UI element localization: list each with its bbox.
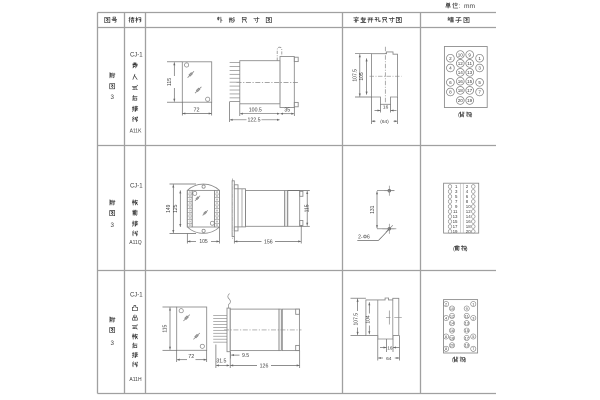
svg-text:14: 14 [450,322,454,326]
svg-text:107.5: 107.5 [352,69,358,82]
svg-text:2: 2 [445,302,447,306]
svg-text:72: 72 [188,354,194,360]
svg-text:12: 12 [458,61,464,66]
svg-text:): ) [466,246,468,252]
svg-text:3: 3 [110,94,114,101]
svg-text:3: 3 [478,66,481,71]
svg-text:mm: mm [464,3,475,10]
svg-text:6: 6 [445,335,447,339]
svg-text:18: 18 [458,88,464,93]
svg-text:1: 1 [478,56,481,61]
svg-text:156: 156 [264,239,273,245]
svg-text:(64): (64) [380,119,389,125]
svg-text:13: 13 [467,70,473,75]
svg-text:A11H: A11H [129,377,142,383]
svg-text:7: 7 [472,347,474,351]
svg-text:15: 15 [465,329,469,333]
svg-text:20: 20 [458,98,464,103]
svg-text:17: 17 [465,336,469,340]
svg-text:18: 18 [450,336,454,340]
svg-text:16: 16 [450,329,454,333]
svg-text:4: 4 [449,66,452,71]
svg-text:3: 3 [110,340,114,347]
svg-text:A11Q: A11Q [129,240,142,246]
svg-text:CJ-1: CJ-1 [130,184,143,190]
svg-text:20: 20 [450,344,454,348]
svg-text:105: 105 [359,72,365,81]
svg-text:CJ-1: CJ-1 [130,292,143,298]
svg-text:20: 20 [466,229,471,234]
svg-text:11: 11 [467,61,472,66]
svg-text:5: 5 [478,80,481,85]
svg-text:19: 19 [453,229,458,234]
svg-text:115: 115 [163,324,169,332]
svg-text:A11K: A11K [130,128,143,134]
svg-text:10: 10 [450,307,454,311]
svg-text:9.5: 9.5 [242,353,249,359]
svg-text:122.5: 122.5 [248,118,261,124]
svg-text:126: 126 [260,363,269,369]
svg-text:100.5: 100.5 [249,108,262,114]
svg-text:72: 72 [194,107,200,113]
svg-text:12: 12 [450,314,454,318]
svg-text:7: 7 [478,90,481,95]
svg-text:16: 16 [383,105,389,111]
svg-text:3: 3 [472,316,474,320]
svg-text:115: 115 [305,204,311,212]
svg-text:6: 6 [449,80,452,85]
svg-text:107.5: 107.5 [353,313,359,326]
svg-text:(: ( [453,246,455,252]
svg-text:115: 115 [167,78,173,86]
svg-text:Φ6: Φ6 [363,234,370,240]
svg-text:11: 11 [465,314,469,318]
svg-text:CJ-1: CJ-1 [130,52,143,58]
svg-text:): ) [471,113,473,119]
svg-text:31.5: 31.5 [216,359,226,365]
svg-text:8: 8 [445,347,447,351]
svg-text:19: 19 [465,344,469,348]
svg-text:8: 8 [449,90,452,95]
svg-text:9: 9 [466,307,468,311]
svg-text:104: 104 [366,315,372,324]
svg-text:105: 105 [199,239,208,245]
svg-text:10: 10 [458,52,464,57]
svg-text:15: 15 [467,79,473,84]
svg-text:125: 125 [173,204,179,213]
svg-text:9: 9 [468,52,471,57]
svg-text:1: 1 [472,302,474,306]
svg-text:14: 14 [458,70,464,75]
svg-text:16: 16 [387,345,393,350]
svg-text:149: 149 [166,204,172,213]
svg-text:4: 4 [445,316,447,320]
svg-text:2: 2 [449,56,452,61]
svg-text:16: 16 [458,79,464,84]
svg-text:): ) [464,358,466,364]
svg-text:13: 13 [465,322,469,326]
svg-text:35: 35 [284,108,290,114]
svg-text:19: 19 [467,98,473,103]
svg-text:64: 64 [386,356,392,362]
svg-text:17: 17 [467,88,473,93]
svg-text:131: 131 [370,205,376,214]
svg-text:3: 3 [110,222,114,229]
svg-text:5: 5 [472,335,474,339]
